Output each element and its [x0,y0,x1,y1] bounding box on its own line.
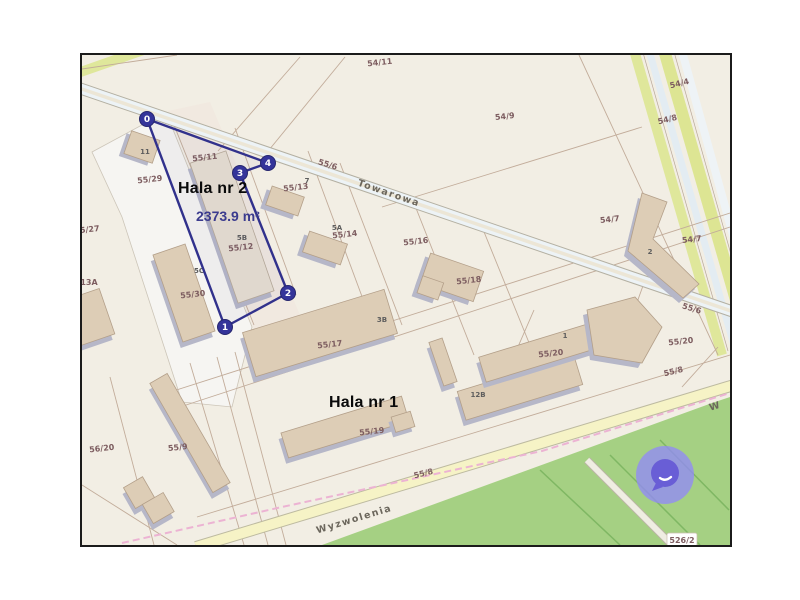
building-label: 7 [305,177,310,185]
chat-bubble-icon [636,446,694,504]
boxed-parcel-label: 526/2 [669,536,694,545]
map-viewport[interactable]: 54/1154/954/454/855/654/754/755/655/2055… [80,53,732,547]
parcel-label: 13A [82,278,98,287]
measure-vertex-number: 1 [222,323,228,333]
annotation-hala-2: Hala nr 2 [178,180,247,198]
measurement-area-label: 2373.9 m² [196,208,260,224]
map-svg: 54/1154/954/454/855/654/754/755/655/2055… [82,55,730,545]
chat-widget-button[interactable] [636,446,694,504]
measure-vertex-number: 0 [144,115,150,125]
building-label: 12B [470,391,485,399]
measure-vertex-number: 4 [265,159,271,169]
building-label: 11 [140,148,150,156]
building-label: 5A [332,224,343,232]
screenshot-root: 54/1154/954/454/855/654/754/755/655/2055… [0,0,800,600]
measure-vertex-number: 3 [237,169,243,179]
building-label: 1 [563,332,568,340]
measure-vertex-number: 2 [285,289,291,299]
building-label: 3B [377,316,387,324]
building-label: 2 [648,248,653,256]
annotation-hala-1: Hala nr 1 [329,394,398,412]
